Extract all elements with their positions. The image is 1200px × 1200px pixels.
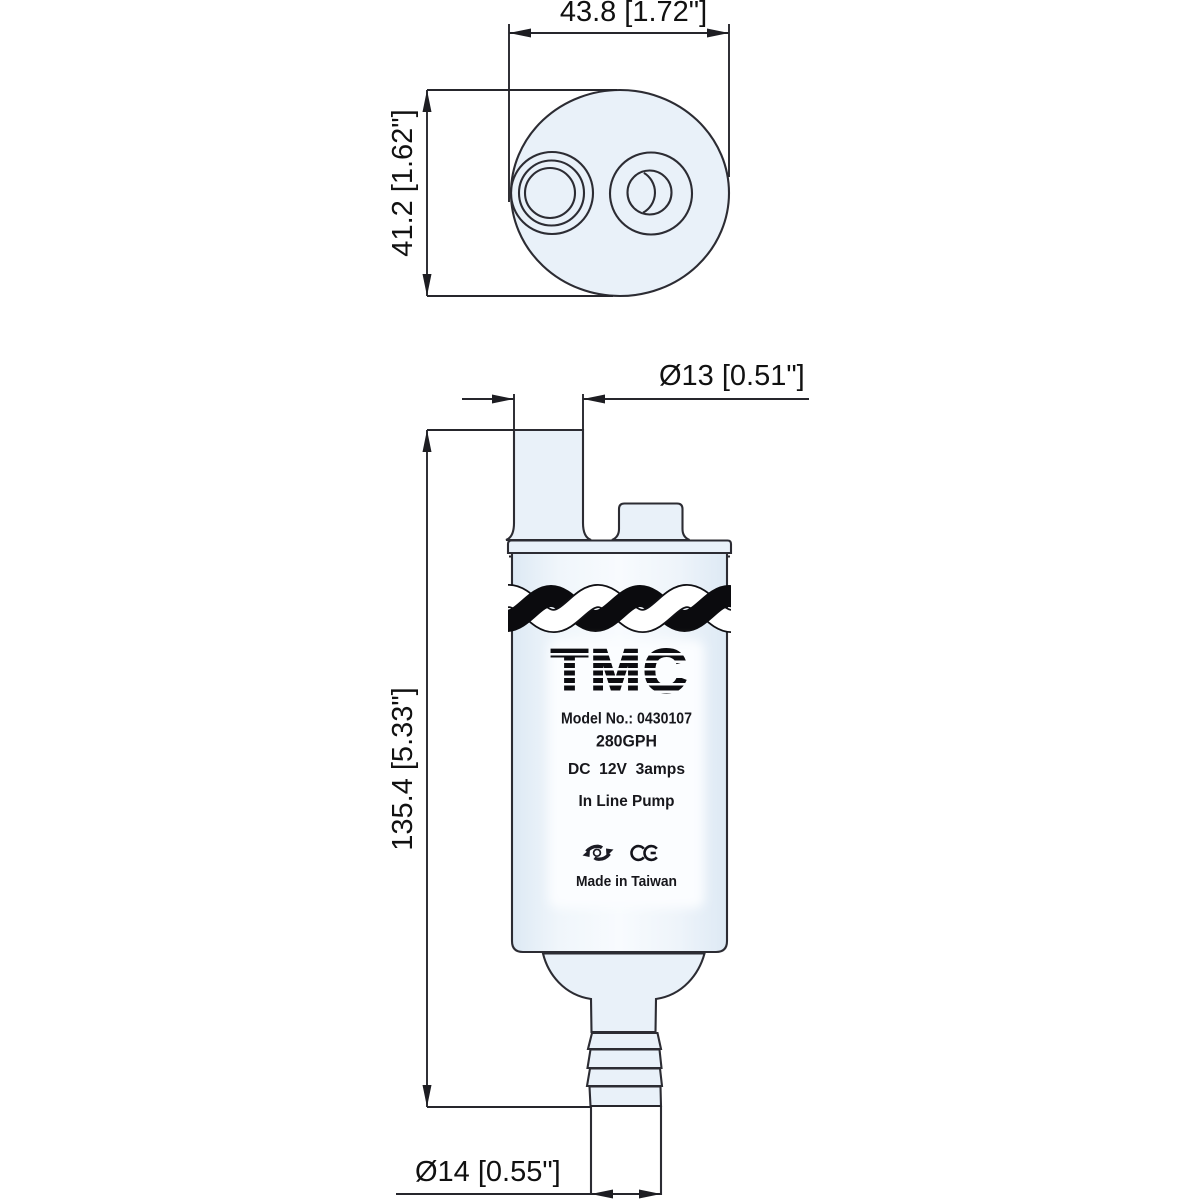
svg-text:135.4 [5.33"]: 135.4 [5.33"] — [387, 687, 419, 850]
svg-text:43.8 [1.72"]: 43.8 [1.72"] — [560, 0, 707, 28]
svg-text:Ø13 [0.51"]: Ø13 [0.51"] — [659, 360, 805, 392]
svg-text:Model No.: 0430107: Model No.: 0430107 — [561, 711, 692, 728]
svg-text:280GPH: 280GPH — [596, 733, 657, 751]
svg-text:TMC: TMC — [551, 637, 689, 705]
svg-text:In Line Pump: In Line Pump — [579, 793, 675, 810]
svg-text:Ø14 [0.55"]: Ø14 [0.55"] — [415, 1156, 561, 1188]
svg-text:Made in Taiwan: Made in Taiwan — [576, 873, 677, 890]
svg-text:41.2 [1.62"]: 41.2 [1.62"] — [387, 109, 419, 256]
svg-text:DC 12V 3amps: DC 12V 3amps — [568, 761, 685, 778]
